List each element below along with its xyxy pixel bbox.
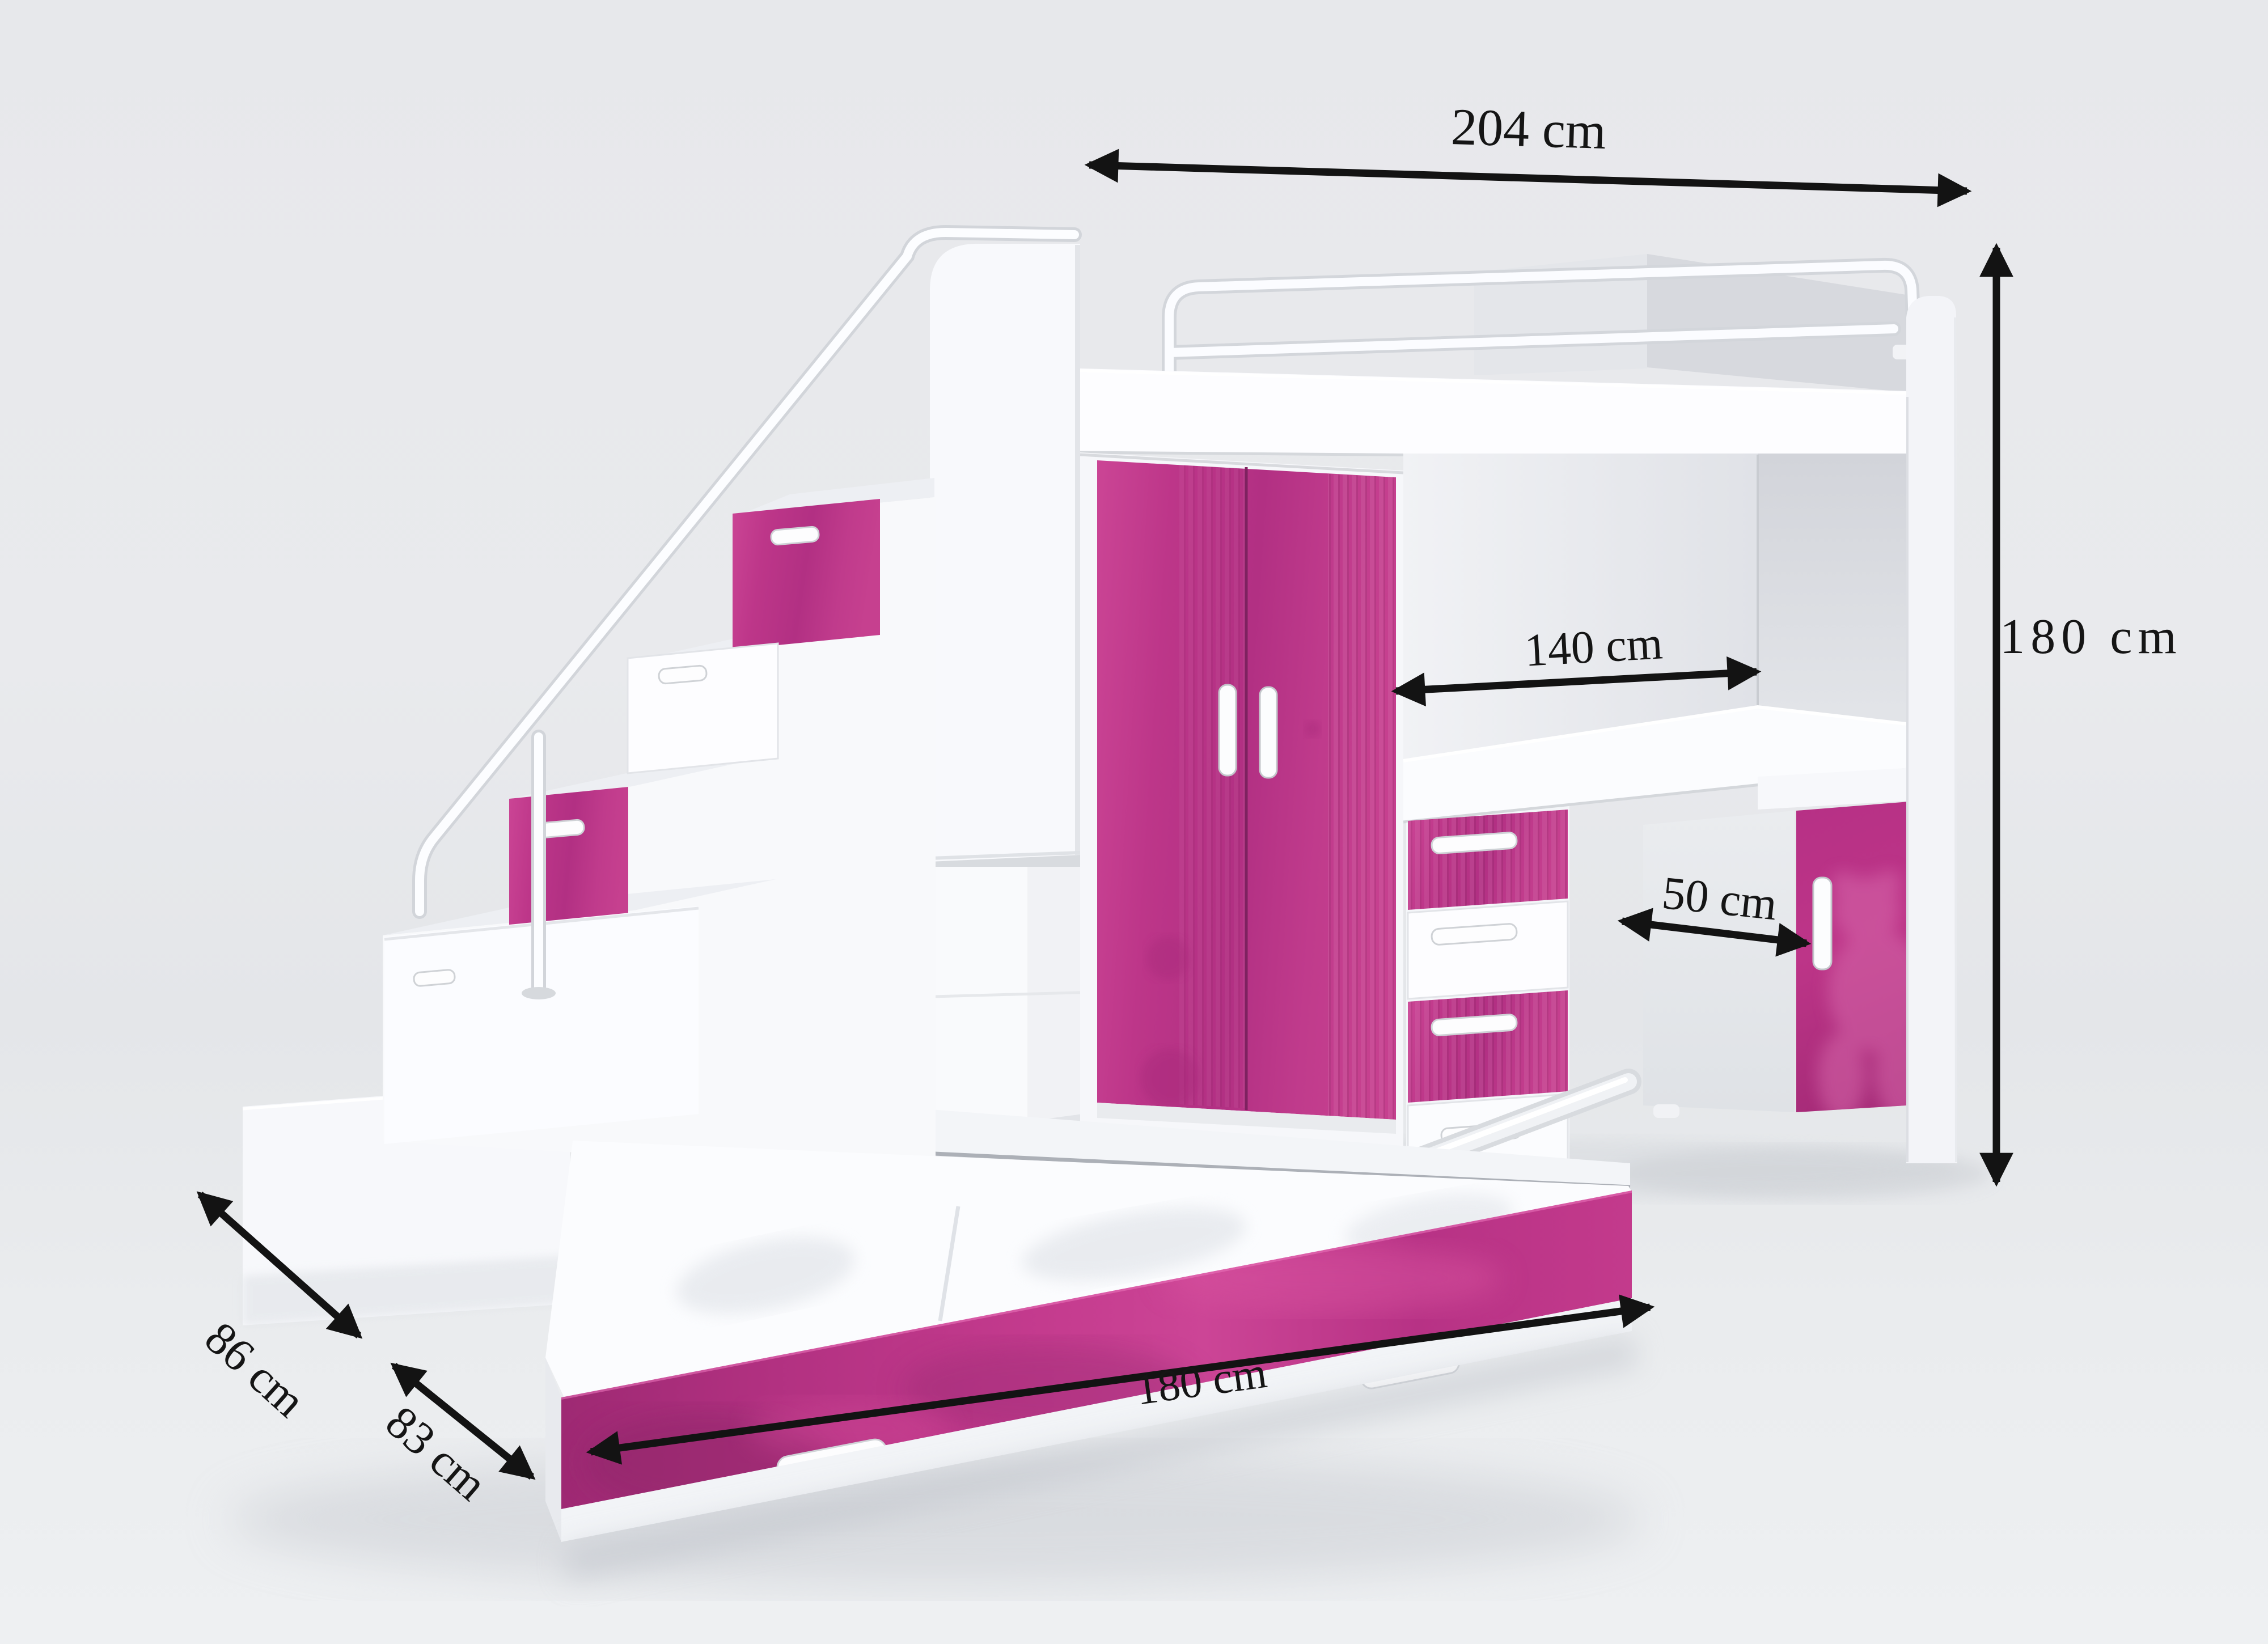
- cabinet-handle: [1813, 878, 1831, 969]
- stair-drawer-pink-top: [733, 499, 880, 650]
- label-overall-width: 204 cm: [1450, 98, 1607, 160]
- arrow-overall-width: [1089, 165, 1967, 191]
- cabinet-foot: [1653, 1104, 1679, 1118]
- label-inner-width: 140 cm: [1523, 617, 1664, 676]
- wardrobe: [1080, 452, 1403, 1152]
- stair-drawer-white: [628, 643, 778, 773]
- label-upper-depth: 86 cm: [196, 1312, 316, 1427]
- right-side-panel: [1906, 296, 1957, 1163]
- head-partition-panel: [930, 244, 1080, 862]
- wardrobe-handle-left: [1219, 685, 1236, 776]
- storage-staircase: [383, 478, 936, 1173]
- wardrobe-handle-right: [1260, 687, 1277, 778]
- drawer-white-middle: [1408, 901, 1568, 999]
- cabinet-side-panel: [1643, 811, 1795, 1112]
- furniture-dimension-diagram: 204 cm 180 cm 140 cm 50 cm 86 cm 83 cm 1…: [0, 0, 2268, 1644]
- label-overall-height: 180 cm: [2000, 609, 2182, 664]
